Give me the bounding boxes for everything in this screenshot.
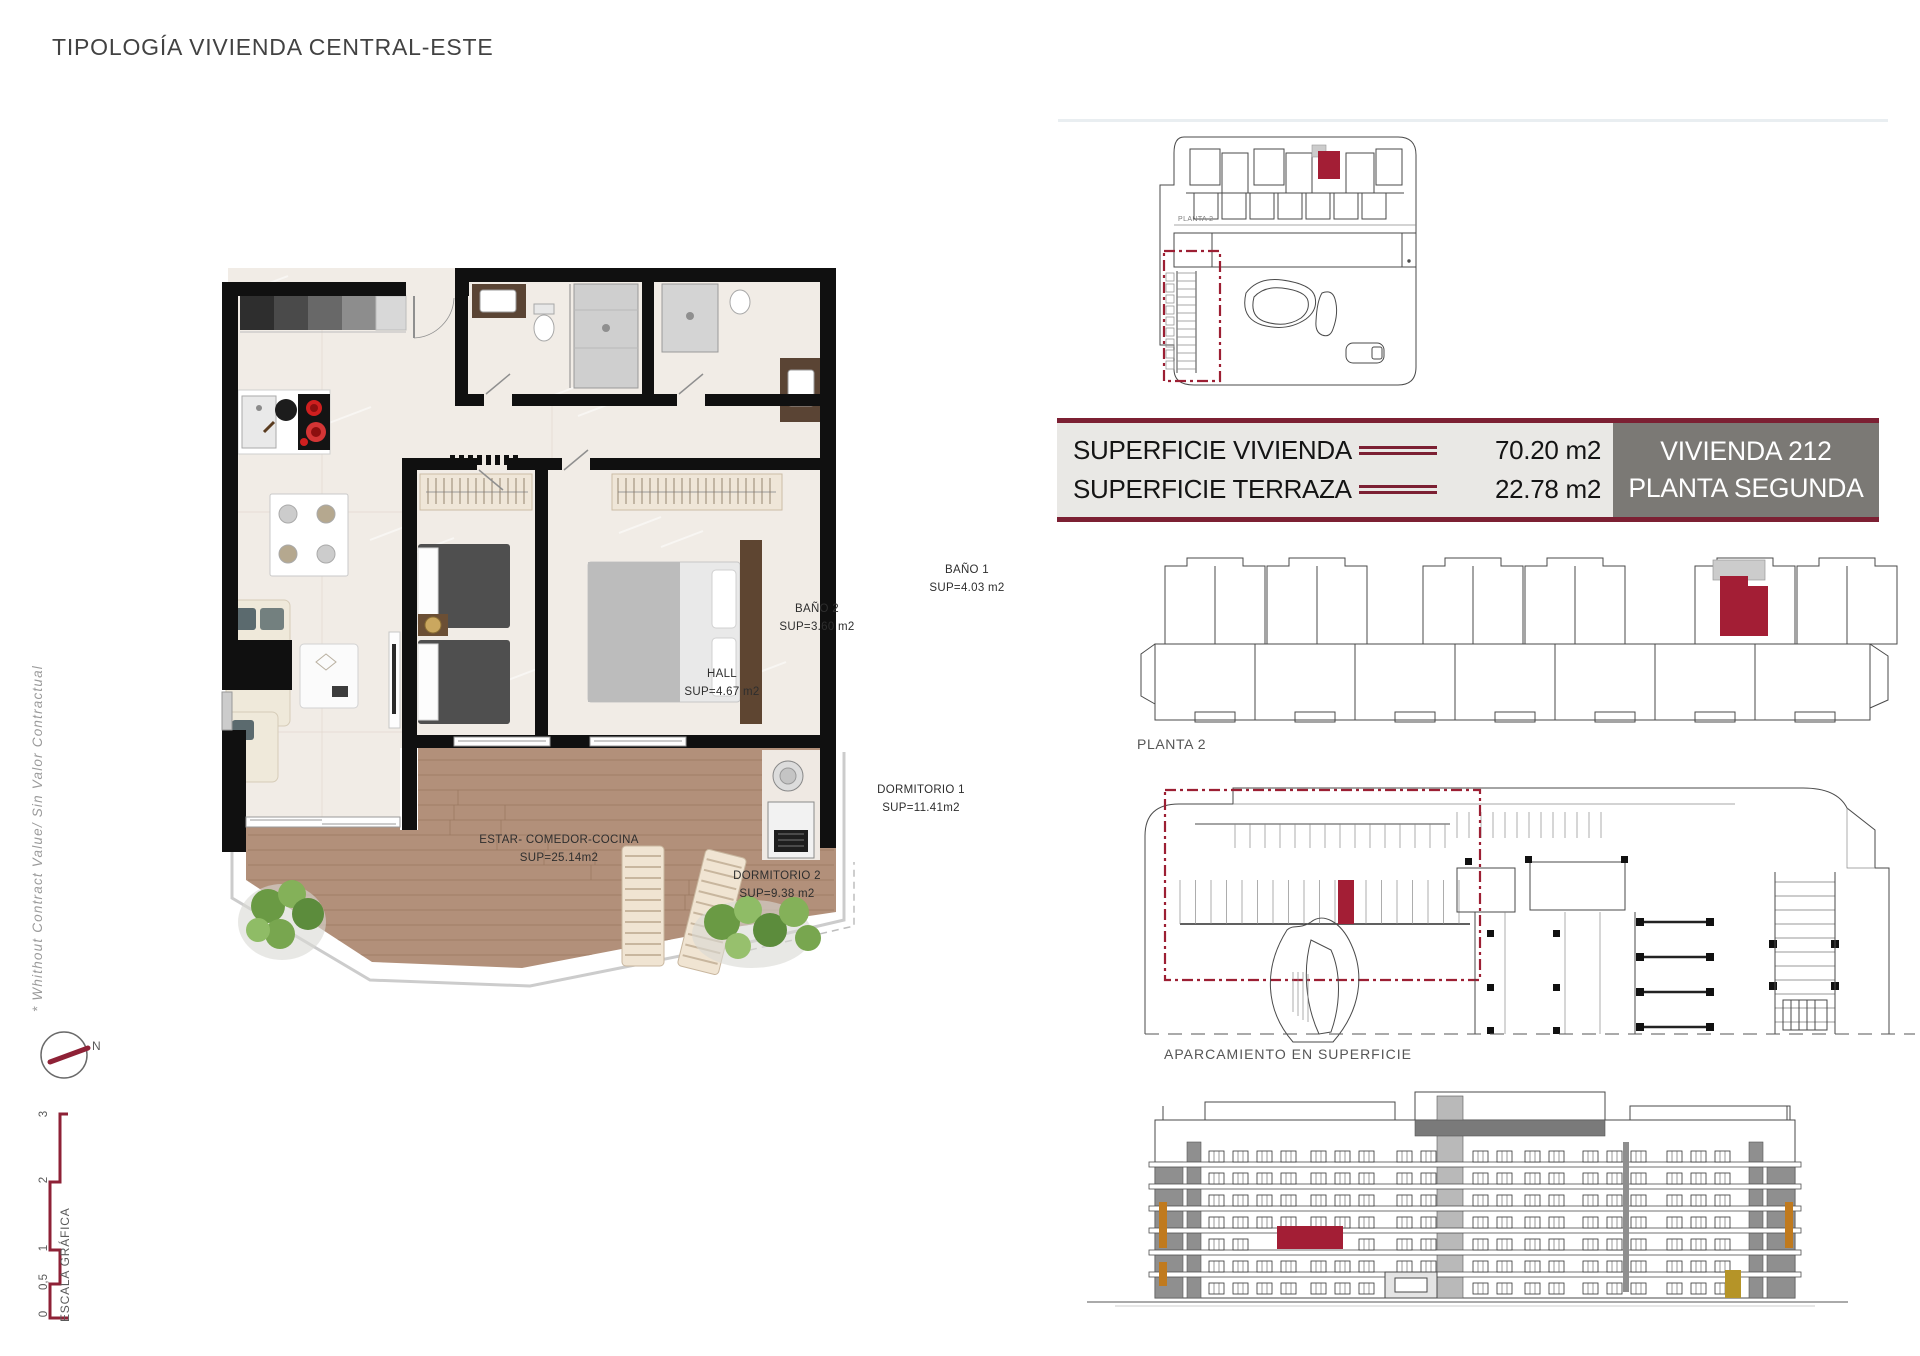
building-elevation-drawing <box>1085 1082 1850 1337</box>
highlighted-stall <box>1338 880 1354 924</box>
divider-line <box>1058 119 1888 122</box>
planta2-caption: PLANTA 2 <box>1137 736 1206 752</box>
stall-ladders <box>1636 882 1839 1031</box>
unit-badge: VIVIENDA 212 PLANTA SEGUNDA <box>1613 423 1879 517</box>
room-label-hall: HALL SUP=4.67 m2 <box>684 666 759 702</box>
compass-needle <box>50 1048 88 1062</box>
parking-caption: APARCAMIENTO EN SUPERFICIE <box>1164 1046 1412 1062</box>
ramp-and-core <box>1457 862 1635 1034</box>
building-blocks <box>1186 149 1404 219</box>
toilet <box>534 315 554 341</box>
room-label-estar: ESTAR- COMEDOR-COCINA SUP=25.14m2 <box>479 832 638 868</box>
parking-stalls <box>1180 812 1601 924</box>
entrance <box>1385 1272 1437 1298</box>
room-label-dormitorio1: DORMITORIO 1 SUP=11.41m2 <box>877 782 965 818</box>
dining-table <box>270 494 348 576</box>
page-title: TIPOLOGÍA VIVIENDA CENTRAL-ESTE <box>52 34 493 61</box>
selection-outline <box>1165 790 1480 980</box>
roof-parapets <box>1163 1092 1790 1120</box>
room-label-banio1: BAÑO 1 SUP=4.03 m2 <box>929 562 1004 598</box>
planta2-plan-drawing <box>1135 552 1910 752</box>
scale-tick: 0,5 <box>38 1270 50 1294</box>
highlighted-unit <box>1318 151 1340 179</box>
columns <box>1465 856 1628 1034</box>
surface-row: SUPERFICIE TERRAZA 22.78 m2 <box>1073 474 1601 505</box>
room-label-banio2: BAÑO 2 SUP=3.60 m2 <box>779 601 854 637</box>
parking-plan-drawing <box>1135 772 1920 1050</box>
window <box>222 692 232 730</box>
highlighted-unit <box>1720 576 1768 636</box>
compass: N <box>34 1022 114 1088</box>
unit-number: VIVIENDA 212 <box>1613 433 1879 470</box>
scale-tick: 0 <box>38 1302 50 1326</box>
shower <box>574 284 638 388</box>
unit-floor: PLANTA SEGUNDA <box>1613 470 1879 507</box>
sink <box>242 396 276 448</box>
pools <box>1245 280 1337 336</box>
leader-line <box>1359 485 1437 494</box>
parking-ladder <box>1166 271 1196 373</box>
scale-tick: 1 <box>38 1236 50 1260</box>
washing-machine <box>768 802 814 858</box>
scale-bar: 0 0,5 1 2 3 ESCALA GRÁFICA <box>36 1108 136 1348</box>
car <box>1346 343 1384 363</box>
surface-value: 70.20 m2 <box>1459 435 1601 466</box>
scale-tick: 2 <box>38 1168 50 1192</box>
pan <box>275 399 297 421</box>
room-label-dormitorio2: DORMITORIO 2 SUP=9.38 m2 <box>733 868 821 904</box>
tv-unit <box>389 632 400 728</box>
toilet <box>730 290 750 314</box>
site-key-plan <box>1150 133 1435 405</box>
disclaimer-note: * Whithout Contract Value/ Sin Valor Con… <box>30 582 45 1012</box>
surface-row: SUPERFICIE VIVIENDA 70.20 m2 <box>1073 435 1601 466</box>
selection-outline <box>1164 251 1220 381</box>
surface-rows: SUPERFICIE VIVIENDA 70.20 m2 SUPERFICIE … <box>1057 423 1613 517</box>
north-label: N <box>92 1039 101 1053</box>
surface-summary-table: SUPERFICIE VIVIENDA 70.20 m2 SUPERFICIE … <box>1057 418 1879 522</box>
surface-label: SUPERFICIE TERRAZA <box>1073 474 1352 505</box>
surface-value: 22.78 m2 <box>1459 474 1601 505</box>
leader-line <box>1359 446 1437 455</box>
highlighted-unit <box>1277 1226 1343 1249</box>
keyplan-tag: PLANTA 2 <box>1178 216 1213 223</box>
scale-bar-title: ESCALA GRÁFICA <box>58 1207 72 1322</box>
coffee-table <box>300 644 358 708</box>
scale-tick: 3 <box>38 1102 50 1126</box>
surface-label: SUPERFICIE VIVIENDA <box>1073 435 1352 466</box>
